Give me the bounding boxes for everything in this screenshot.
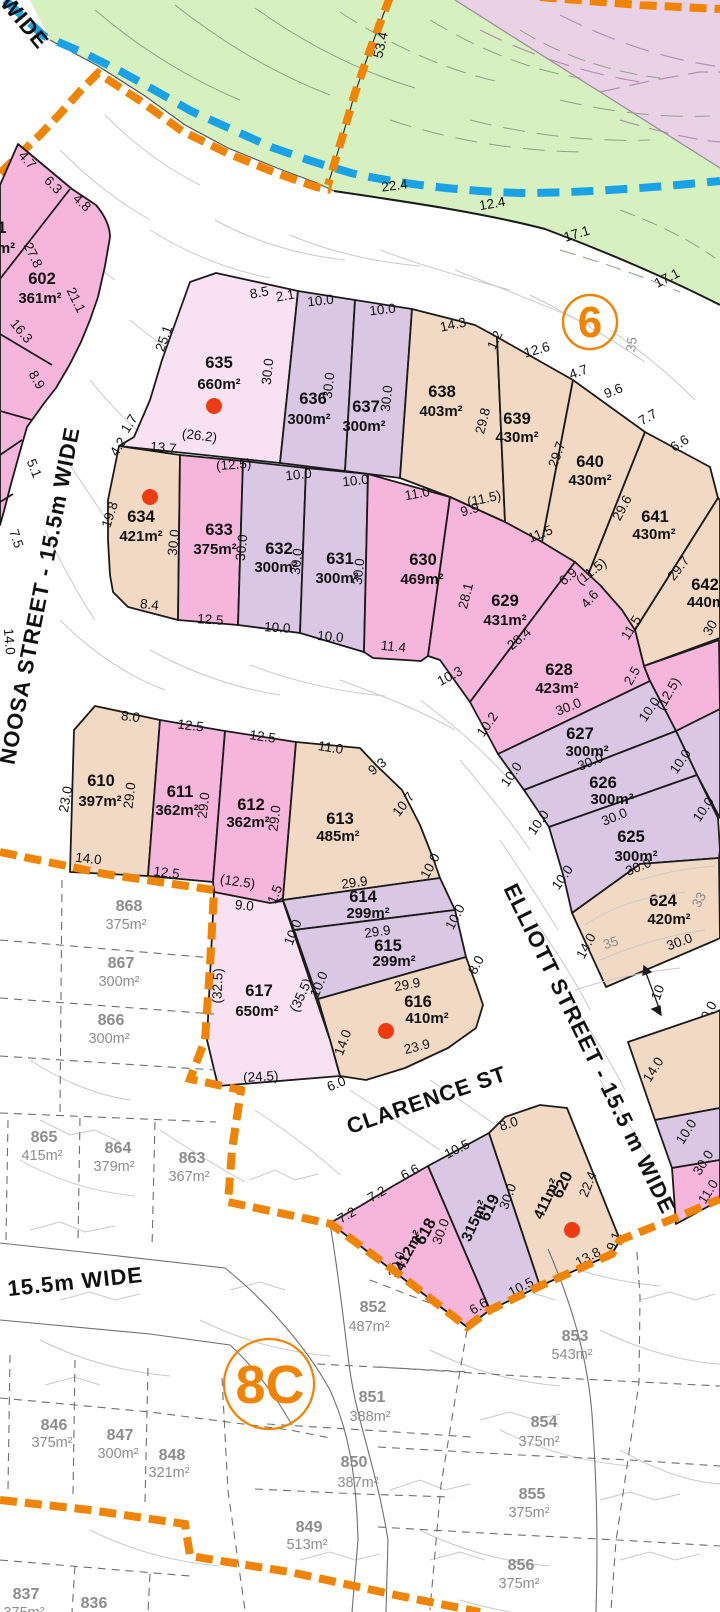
- svg-text:6: 6: [578, 298, 602, 347]
- svg-text:421m²: 421m²: [119, 528, 162, 545]
- svg-text:641: 641: [641, 508, 669, 526]
- svg-text:837: 837: [13, 1586, 40, 1603]
- svg-text:397m²: 397m²: [78, 793, 121, 810]
- svg-text:440m: 440m: [687, 594, 720, 611]
- svg-text:637: 637: [352, 398, 380, 416]
- svg-text:614: 614: [349, 888, 377, 906]
- svg-text:640: 640: [576, 453, 604, 471]
- svg-text:8C: 8C: [235, 1355, 304, 1415]
- svg-text:29.0: 29.0: [120, 781, 138, 809]
- svg-text:12.5: 12.5: [177, 716, 205, 734]
- svg-text:630: 630: [409, 551, 437, 569]
- svg-text:634: 634: [127, 508, 155, 526]
- svg-text:10.0: 10.0: [369, 301, 397, 319]
- svg-text:420m²: 420m²: [647, 911, 690, 928]
- svg-text:375m²: 375m²: [3, 1605, 44, 1612]
- svg-text:469m²: 469m²: [400, 571, 443, 588]
- svg-text:10.0: 10.0: [307, 292, 335, 310]
- svg-text:660m²: 660m²: [197, 376, 240, 393]
- svg-text:375m²: 375m²: [498, 1576, 539, 1592]
- svg-text:30.0: 30.0: [165, 529, 183, 557]
- svg-text:9.0: 9.0: [234, 897, 254, 914]
- svg-text:30.0: 30.0: [233, 534, 251, 562]
- svg-text:611: 611: [167, 783, 194, 801]
- svg-text:629: 629: [491, 592, 519, 610]
- svg-text:836: 836: [81, 1595, 108, 1612]
- svg-text:362m²: 362m²: [155, 802, 198, 819]
- svg-text:30.0: 30.0: [259, 358, 277, 386]
- svg-text:35: 35: [623, 336, 640, 353]
- svg-text:867: 867: [108, 955, 135, 972]
- svg-text:850: 850: [341, 1454, 368, 1471]
- svg-text:631: 631: [326, 550, 354, 568]
- svg-text:610: 610: [87, 772, 115, 790]
- svg-text:(24.5): (24.5): [243, 1068, 279, 1085]
- svg-text:431m²: 431m²: [483, 612, 526, 629]
- svg-text:300m²: 300m²: [88, 1031, 129, 1047]
- svg-text:367m²: 367m²: [168, 1169, 209, 1185]
- svg-text:13.7: 13.7: [150, 439, 177, 456]
- svg-text:403m²: 403m²: [419, 403, 462, 420]
- svg-text:379m²: 379m²: [93, 1159, 134, 1175]
- svg-text:(12.5): (12.5): [216, 456, 252, 473]
- svg-text:863: 863: [179, 1150, 206, 1167]
- svg-text:29.0: 29.0: [194, 791, 212, 819]
- svg-text:848: 848: [159, 1447, 186, 1464]
- svg-text:650m²: 650m²: [235, 1003, 278, 1020]
- svg-text:626: 626: [589, 774, 617, 792]
- svg-text:10.0: 10.0: [342, 472, 370, 490]
- svg-text:415m²: 415m²: [21, 1148, 62, 1164]
- svg-text:632: 632: [265, 540, 293, 558]
- svg-text:856: 856: [508, 1557, 535, 1574]
- svg-text:849: 849: [296, 1519, 323, 1536]
- svg-text:12.5: 12.5: [197, 611, 224, 628]
- svg-text:300m²: 300m²: [590, 791, 633, 808]
- svg-text:854: 854: [531, 1414, 558, 1431]
- svg-text:430m²: 430m²: [632, 526, 675, 543]
- svg-text:1: 1: [0, 219, 7, 237]
- svg-text:485m²: 485m²: [316, 828, 359, 845]
- svg-text:375m²: 375m²: [518, 1434, 559, 1450]
- svg-text:30.0: 30.0: [350, 558, 368, 586]
- svg-text:300m²: 300m²: [287, 411, 330, 428]
- svg-text:638: 638: [428, 383, 456, 401]
- svg-text:10.0: 10.0: [264, 619, 291, 636]
- svg-text:612: 612: [237, 796, 265, 814]
- svg-text:853: 853: [562, 1328, 589, 1345]
- svg-text:30.0: 30.0: [288, 548, 306, 576]
- svg-text:321m²: 321m²: [148, 1465, 189, 1481]
- svg-text:2.1: 2.1: [275, 287, 296, 305]
- svg-text:602: 602: [28, 270, 56, 288]
- svg-text:300m²: 300m²: [98, 974, 139, 990]
- svg-text:375m²: 375m²: [31, 1435, 72, 1451]
- svg-text:388m²: 388m²: [349, 1409, 390, 1425]
- svg-text:300m²: 300m²: [342, 418, 385, 435]
- svg-text:11.4: 11.4: [380, 638, 407, 656]
- svg-text:613: 613: [326, 810, 354, 828]
- svg-text:m²: m²: [0, 240, 15, 257]
- svg-text:375m²: 375m²: [105, 917, 146, 933]
- svg-text:855: 855: [519, 1486, 546, 1503]
- svg-text:635: 635: [205, 354, 233, 372]
- svg-text:627: 627: [566, 725, 594, 743]
- svg-text:864: 864: [105, 1140, 132, 1157]
- svg-text:865: 865: [31, 1129, 58, 1146]
- svg-text:617: 617: [245, 982, 273, 1000]
- svg-text:375m²: 375m²: [508, 1505, 549, 1521]
- svg-text:628: 628: [545, 661, 573, 679]
- svg-text:8.5: 8.5: [249, 284, 270, 302]
- svg-text:851: 851: [359, 1389, 386, 1406]
- svg-text:642: 642: [691, 576, 719, 594]
- svg-text:639: 639: [503, 410, 531, 428]
- svg-text:543m²: 543m²: [551, 1347, 592, 1363]
- svg-text:29.0: 29.0: [265, 804, 283, 832]
- svg-text:625: 625: [617, 828, 645, 846]
- svg-text:362m²: 362m²: [226, 814, 269, 831]
- svg-text:300m²: 300m²: [97, 1446, 138, 1462]
- svg-text:866: 866: [98, 1012, 125, 1029]
- svg-text:487m²: 487m²: [348, 1319, 389, 1335]
- svg-text:299m²: 299m²: [372, 953, 415, 970]
- svg-text:852: 852: [360, 1299, 387, 1316]
- svg-text:10.0: 10.0: [285, 466, 313, 484]
- svg-text:868: 868: [116, 898, 143, 915]
- svg-text:430m²: 430m²: [568, 472, 611, 489]
- svg-text:616: 616: [404, 993, 432, 1011]
- svg-text:375m²: 375m²: [193, 541, 236, 558]
- svg-text:513m²: 513m²: [286, 1537, 327, 1553]
- svg-text:299m²: 299m²: [346, 905, 389, 922]
- svg-text:30.0: 30.0: [378, 385, 396, 413]
- svg-text:423m²: 423m²: [535, 680, 578, 697]
- svg-text:8.4: 8.4: [139, 596, 160, 613]
- svg-text:387m²: 387m²: [337, 1475, 378, 1491]
- svg-text:410m²: 410m²: [405, 1010, 448, 1027]
- svg-text:846: 846: [41, 1417, 68, 1434]
- svg-text:10.0: 10.0: [317, 628, 344, 645]
- svg-text:847: 847: [107, 1427, 134, 1444]
- svg-text:430m²: 430m²: [495, 429, 538, 446]
- svg-text:8.0: 8.0: [120, 708, 140, 725]
- svg-text:30.0: 30.0: [320, 372, 338, 400]
- svg-text:633: 633: [205, 521, 233, 539]
- svg-text:361m²: 361m²: [18, 290, 61, 307]
